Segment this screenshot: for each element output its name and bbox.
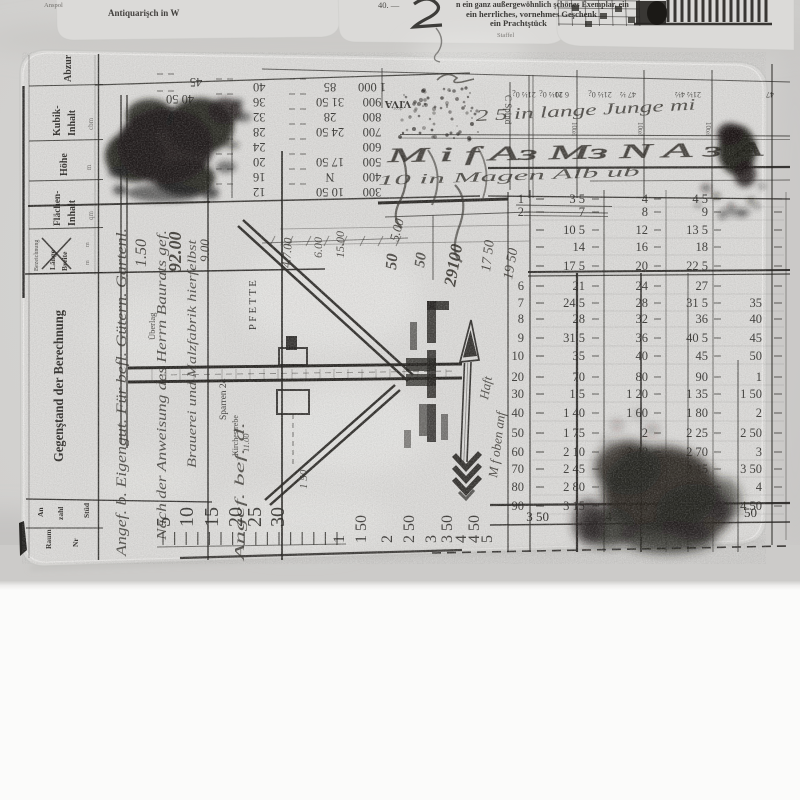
svg-text:Antiquarişch in W: Antiquarişch in W — [108, 8, 179, 18]
svg-text:ein Prachtştück: ein Prachtştück — [490, 18, 547, 28]
svg-text:n ein ganz außergewöhnlich şch: n ein ganz außergewöhnlich şchönes Exemp… — [456, 0, 629, 9]
svg-text:47: 47 — [766, 90, 774, 99]
svg-text:Staffel: Staffel — [497, 32, 514, 39]
svg-text:Anspol: Anspol — [44, 2, 63, 9]
svg-text:40. —: 40. — — [378, 0, 400, 10]
